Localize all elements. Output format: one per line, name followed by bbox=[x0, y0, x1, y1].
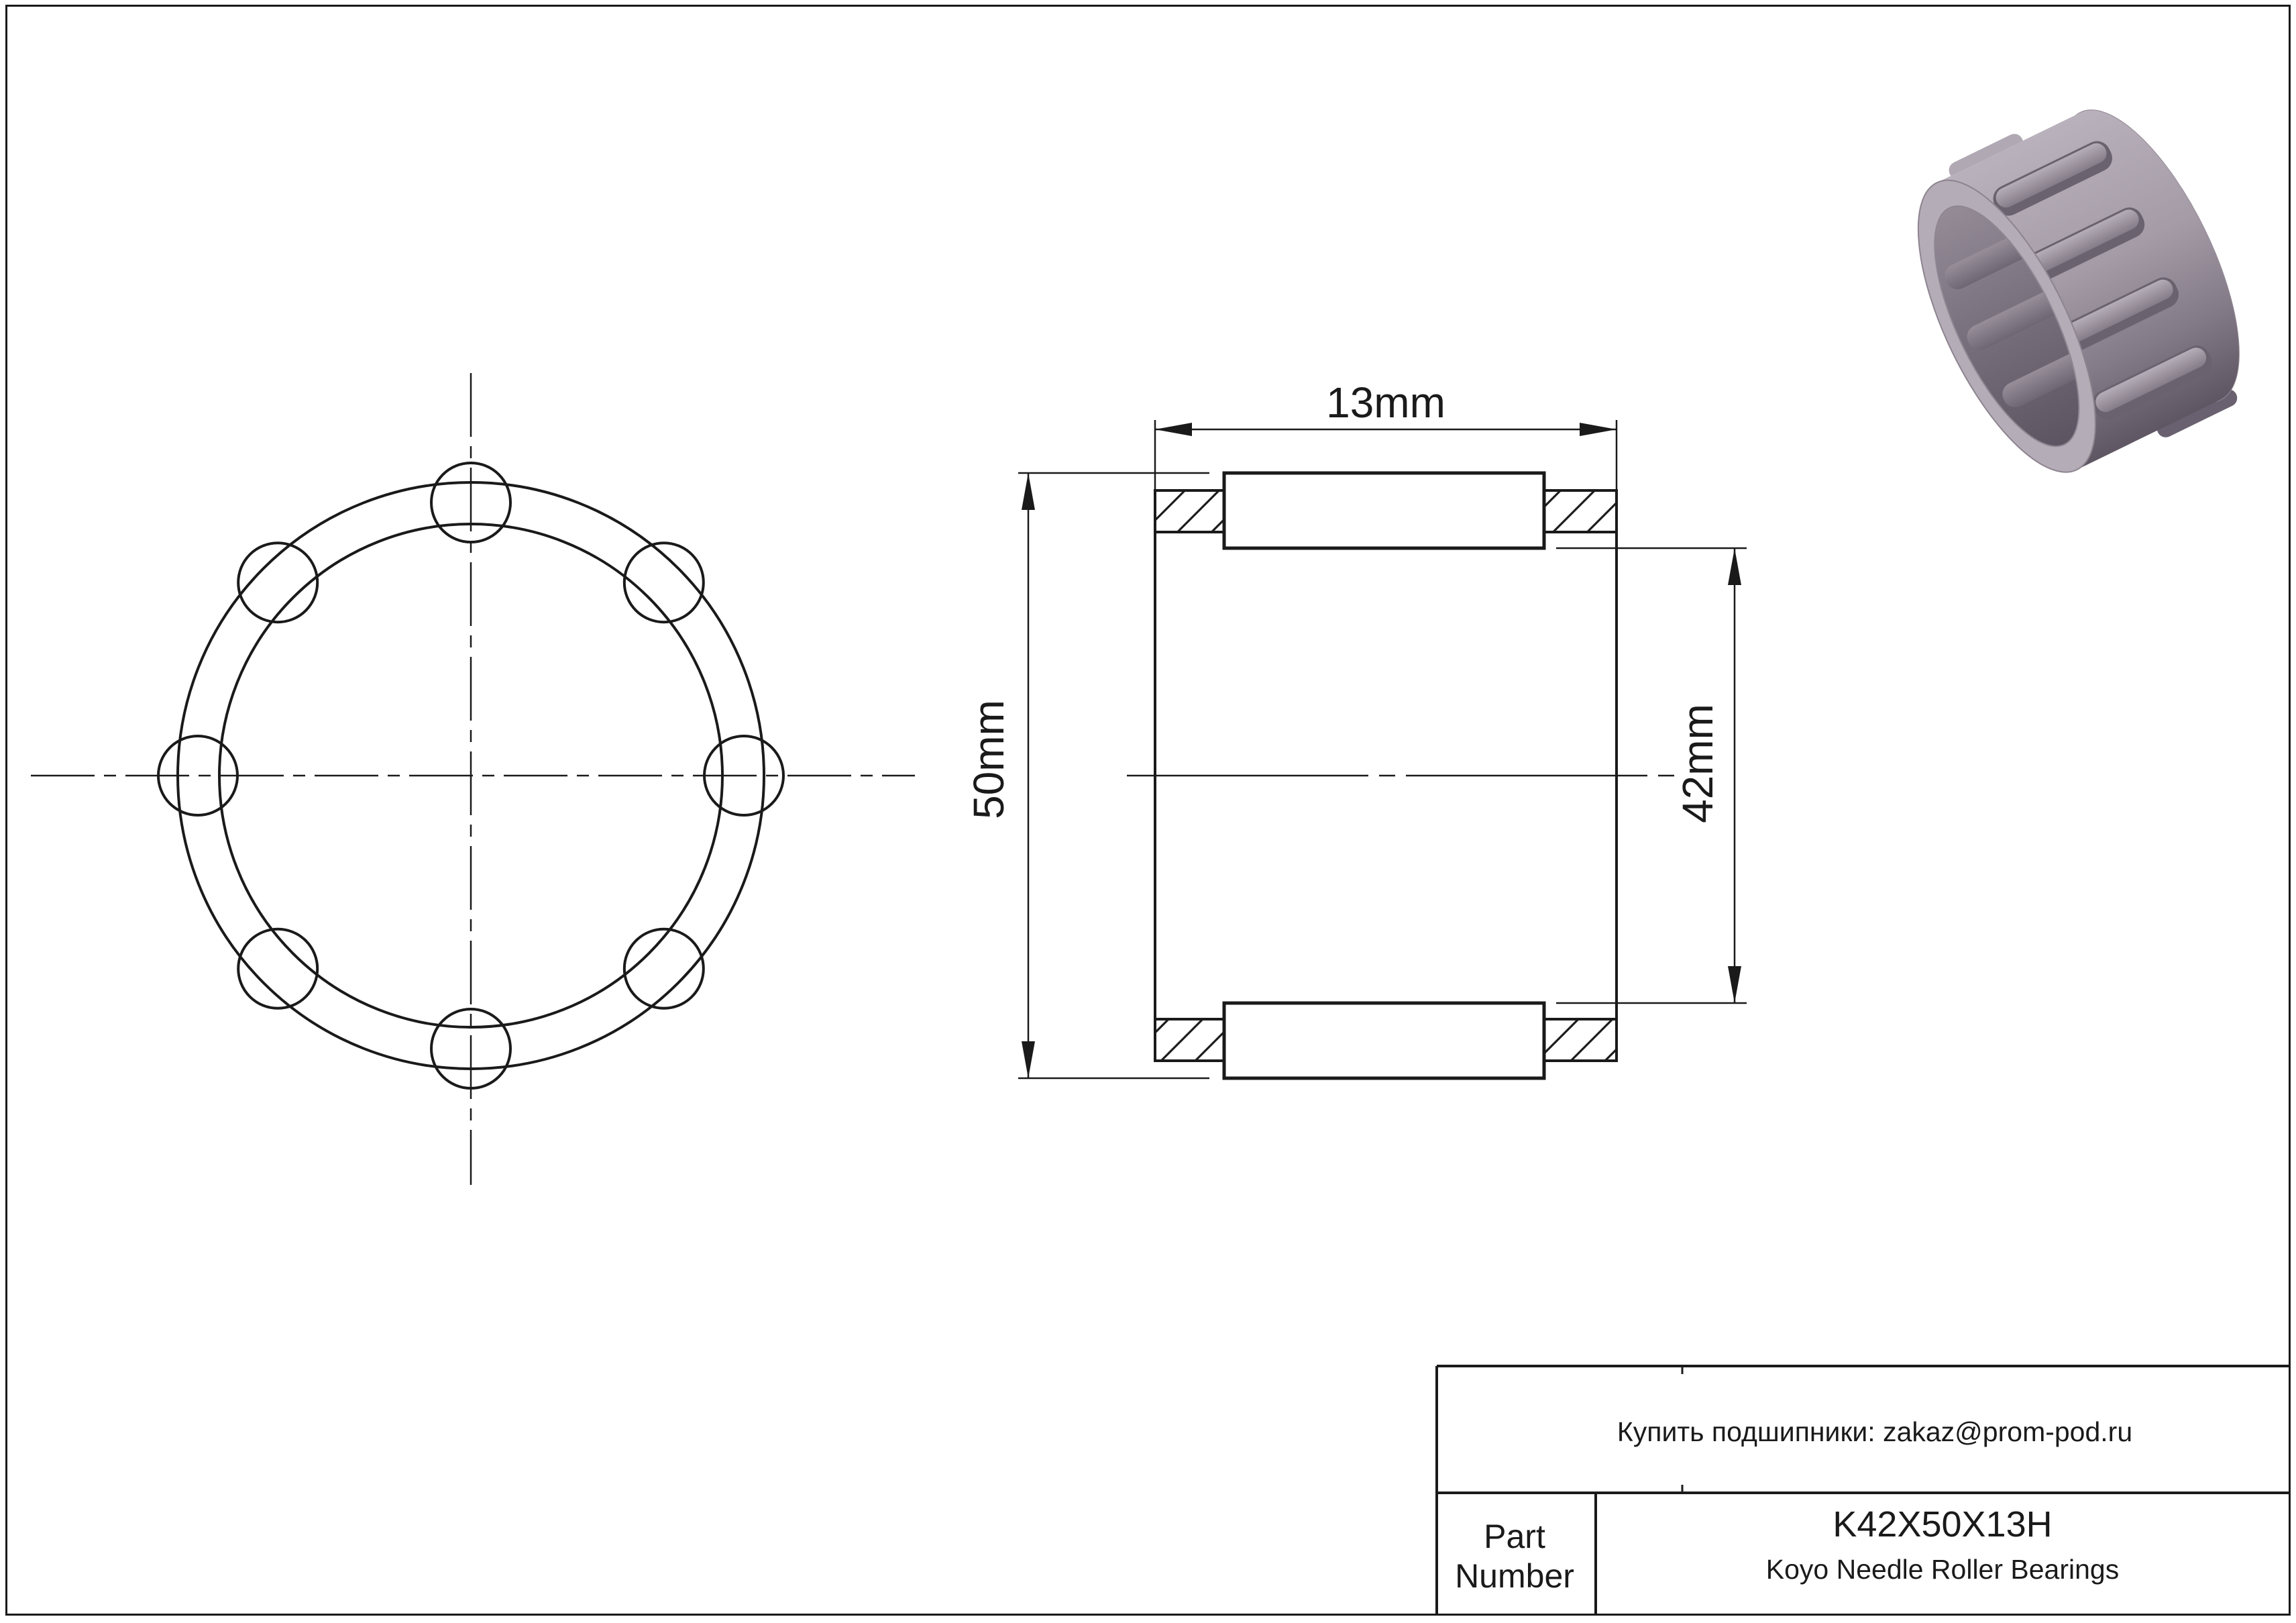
technical-drawing: 13mm 50mm 42mm bbox=[0, 0, 2296, 1623]
contact-text: Купить подшипники: zakaz@prom-pod.ru bbox=[1617, 1416, 2132, 1447]
cage-section-top-left bbox=[1155, 490, 1224, 532]
drawing-sheet: 13mm 50mm 42mm bbox=[0, 0, 2296, 1623]
roller-section-bottom bbox=[1224, 1003, 1544, 1078]
part-label-line2: Number bbox=[1455, 1557, 1574, 1595]
roller-section-top bbox=[1224, 473, 1544, 548]
product-line-text: Koyo Needle Roller Bearings bbox=[1766, 1554, 2119, 1585]
cage-section-bottom-left bbox=[1155, 1019, 1224, 1061]
dimension-label-width: 13mm bbox=[1326, 378, 1445, 427]
dimension-label-inner: 42mm bbox=[1674, 704, 1722, 823]
part-number-text: K42X50X13H bbox=[1833, 1504, 2052, 1545]
cage-section-bottom-right bbox=[1544, 1019, 1617, 1061]
part-label-line1: Part bbox=[1484, 1518, 1545, 1555]
dimension-label-outer: 50mm bbox=[965, 700, 1013, 819]
cage-section-top-right bbox=[1544, 490, 1617, 532]
